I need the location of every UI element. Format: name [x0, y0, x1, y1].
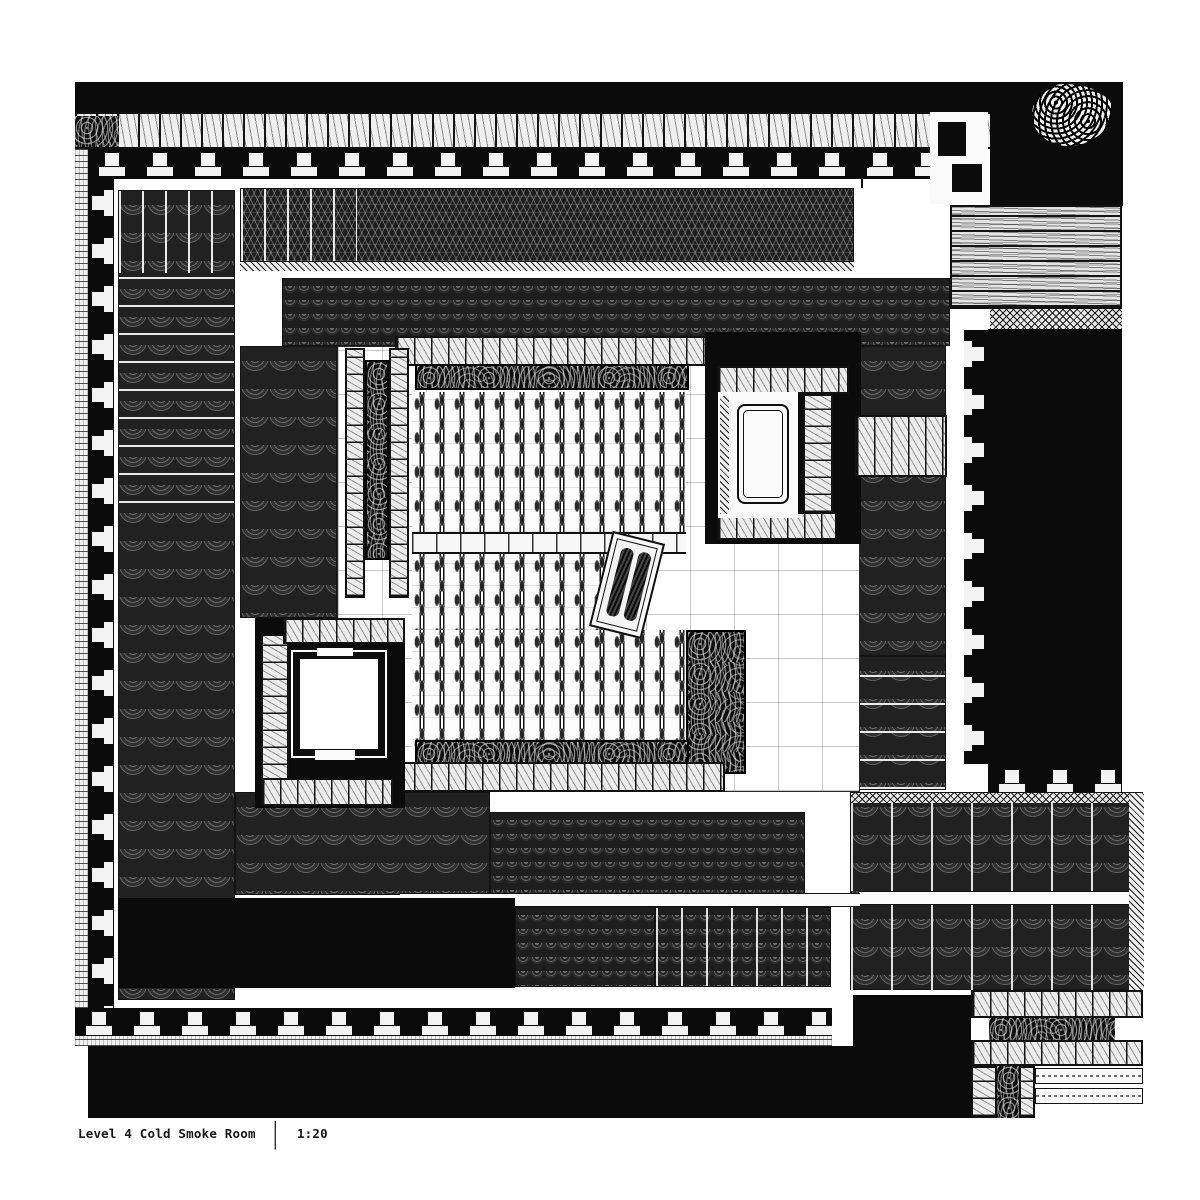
- section-tick-mark: [861, 166, 863, 188]
- stripe-overlay: [119, 191, 234, 273]
- west-stair-scale-column: [118, 190, 235, 1000]
- east-basin-tub-inner: [743, 410, 783, 498]
- south-dentil-course: [75, 1008, 832, 1036]
- southwest-black-mass: [118, 898, 515, 988]
- rock-texture-blob: [1032, 84, 1112, 146]
- scale-label: 1:20: [297, 1126, 328, 1141]
- edge-hatch-strip: [1129, 793, 1144, 991]
- east-timber-deck: [950, 205, 1122, 309]
- basin-surround: [718, 392, 798, 518]
- joint-line-overlay: [851, 905, 1142, 991]
- east-scale-corridor: [858, 346, 946, 656]
- room-south-smoke-flue: [415, 740, 689, 764]
- east-black-mass: [988, 329, 1122, 766]
- west-basin-enclosure: [255, 618, 405, 808]
- west-dentil-course: [88, 179, 114, 1035]
- basin-block-course-right: [803, 394, 833, 514]
- charred-log-band: [989, 1018, 1115, 1040]
- basin-block-course-top: [717, 366, 849, 394]
- east-dentil-course: [964, 330, 988, 764]
- block-course-column: [1019, 1066, 1035, 1118]
- room-north-block-course: [395, 336, 725, 366]
- stripe-overlay: [241, 189, 357, 261]
- smoke-column: [686, 630, 746, 774]
- south-hex-field: [490, 812, 805, 895]
- west-edge-course: [75, 149, 88, 1038]
- east-crosshatch-strip: [990, 309, 1122, 329]
- basin-block-course-bottom: [261, 778, 393, 806]
- south-edge-course: [75, 1036, 832, 1046]
- stair-tread-overlay: [119, 273, 234, 503]
- block-course-row: [971, 990, 1143, 1018]
- east-basin-tub: [737, 404, 789, 504]
- south-stair: [655, 907, 831, 987]
- room-west-block-course-a: [345, 348, 365, 598]
- north-timber-course: [75, 112, 990, 149]
- drawing-title: Level 4 Cold Smoke Room: [78, 1126, 256, 1141]
- basin-block-course-left: [261, 634, 289, 784]
- east-block-cluster: [855, 415, 947, 477]
- northeast-corner-assembly: [930, 112, 988, 204]
- title-block: Level 4 Cold Smoke Room | 1:20: [78, 1118, 328, 1148]
- east-bottom-dentil-course: [988, 766, 1122, 792]
- bench-slab: [1035, 1088, 1143, 1104]
- block-course-row: [971, 1040, 1143, 1066]
- corner-block-a: [938, 122, 966, 156]
- room-south-block-course: [395, 762, 725, 792]
- tub-notch-bottom: [315, 750, 355, 760]
- title-separator: |: [271, 1116, 280, 1150]
- room-west-block-course-b: [389, 348, 409, 598]
- room-west-smoke-flue: [365, 360, 389, 560]
- north-wall-band: [75, 82, 1123, 112]
- east-stair: [858, 656, 946, 790]
- corner-block-b: [952, 164, 982, 192]
- hanging-rack-middle: [412, 554, 612, 630]
- south-hex-field-lower: [515, 907, 655, 987]
- west-basin-tub: [293, 652, 385, 756]
- section-tick-bar: [855, 166, 869, 168]
- plan-canvas: Level 4 Cold Smoke Room | 1:20: [0, 0, 1200, 1200]
- landing-band: [859, 891, 1144, 905]
- joint-line-overlay: [851, 803, 1142, 891]
- basin-hatch-strip: [720, 396, 729, 514]
- basin-block-course-bottom: [717, 512, 837, 540]
- basin-block-course-top: [283, 618, 405, 644]
- stair-riser-overlay: [656, 908, 830, 986]
- southeast-block-assembly: [971, 990, 1143, 1118]
- charred-board-group: [75, 116, 119, 147]
- north-hatch-divider: [240, 262, 854, 271]
- south-wall-band: [88, 1046, 853, 1118]
- block-course-column: [971, 1066, 997, 1118]
- southeast-scale-field: [850, 792, 1143, 990]
- south-mid-black-mass: [853, 995, 971, 1118]
- north-dentil-course: [88, 149, 985, 179]
- tub-notch-top: [317, 648, 353, 656]
- west-mid-scale-field: [240, 346, 337, 618]
- field-hatch-strip: [851, 793, 1142, 803]
- east-basin-enclosure: [705, 332, 861, 544]
- northeast-black-mass: [990, 82, 1123, 206]
- hanging-rack-upper: [412, 392, 686, 532]
- bench-slab: [1035, 1068, 1143, 1084]
- stair-tread-overlay: [859, 657, 945, 789]
- north-thatch-field: [240, 188, 854, 262]
- charred-log-blob: [997, 1066, 1019, 1118]
- room-north-smoke-flue: [415, 364, 689, 390]
